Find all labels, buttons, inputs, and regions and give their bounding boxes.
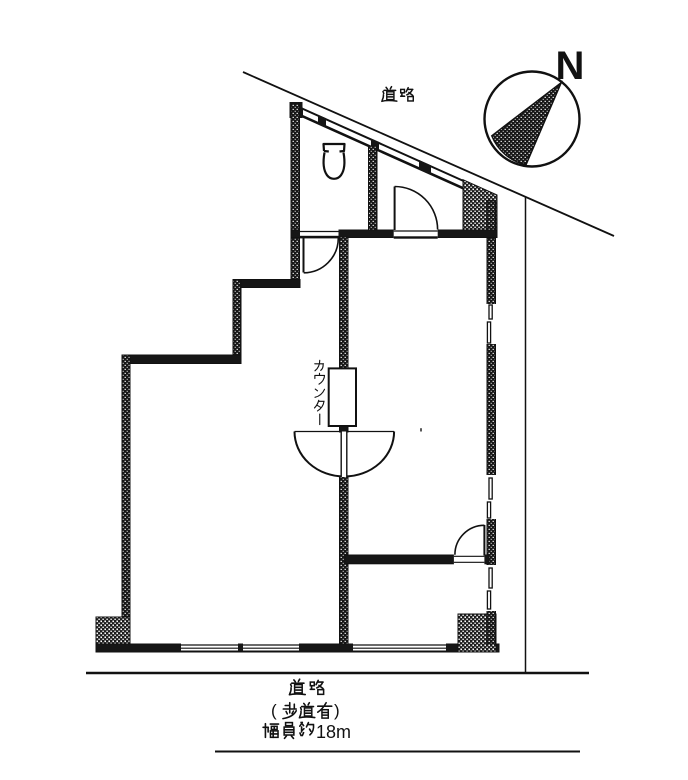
- svg-text:N: N: [556, 44, 585, 88]
- svg-text:18m: 18m: [316, 722, 351, 742]
- svg-text:): ): [334, 701, 340, 720]
- svg-text:(: (: [271, 701, 277, 720]
